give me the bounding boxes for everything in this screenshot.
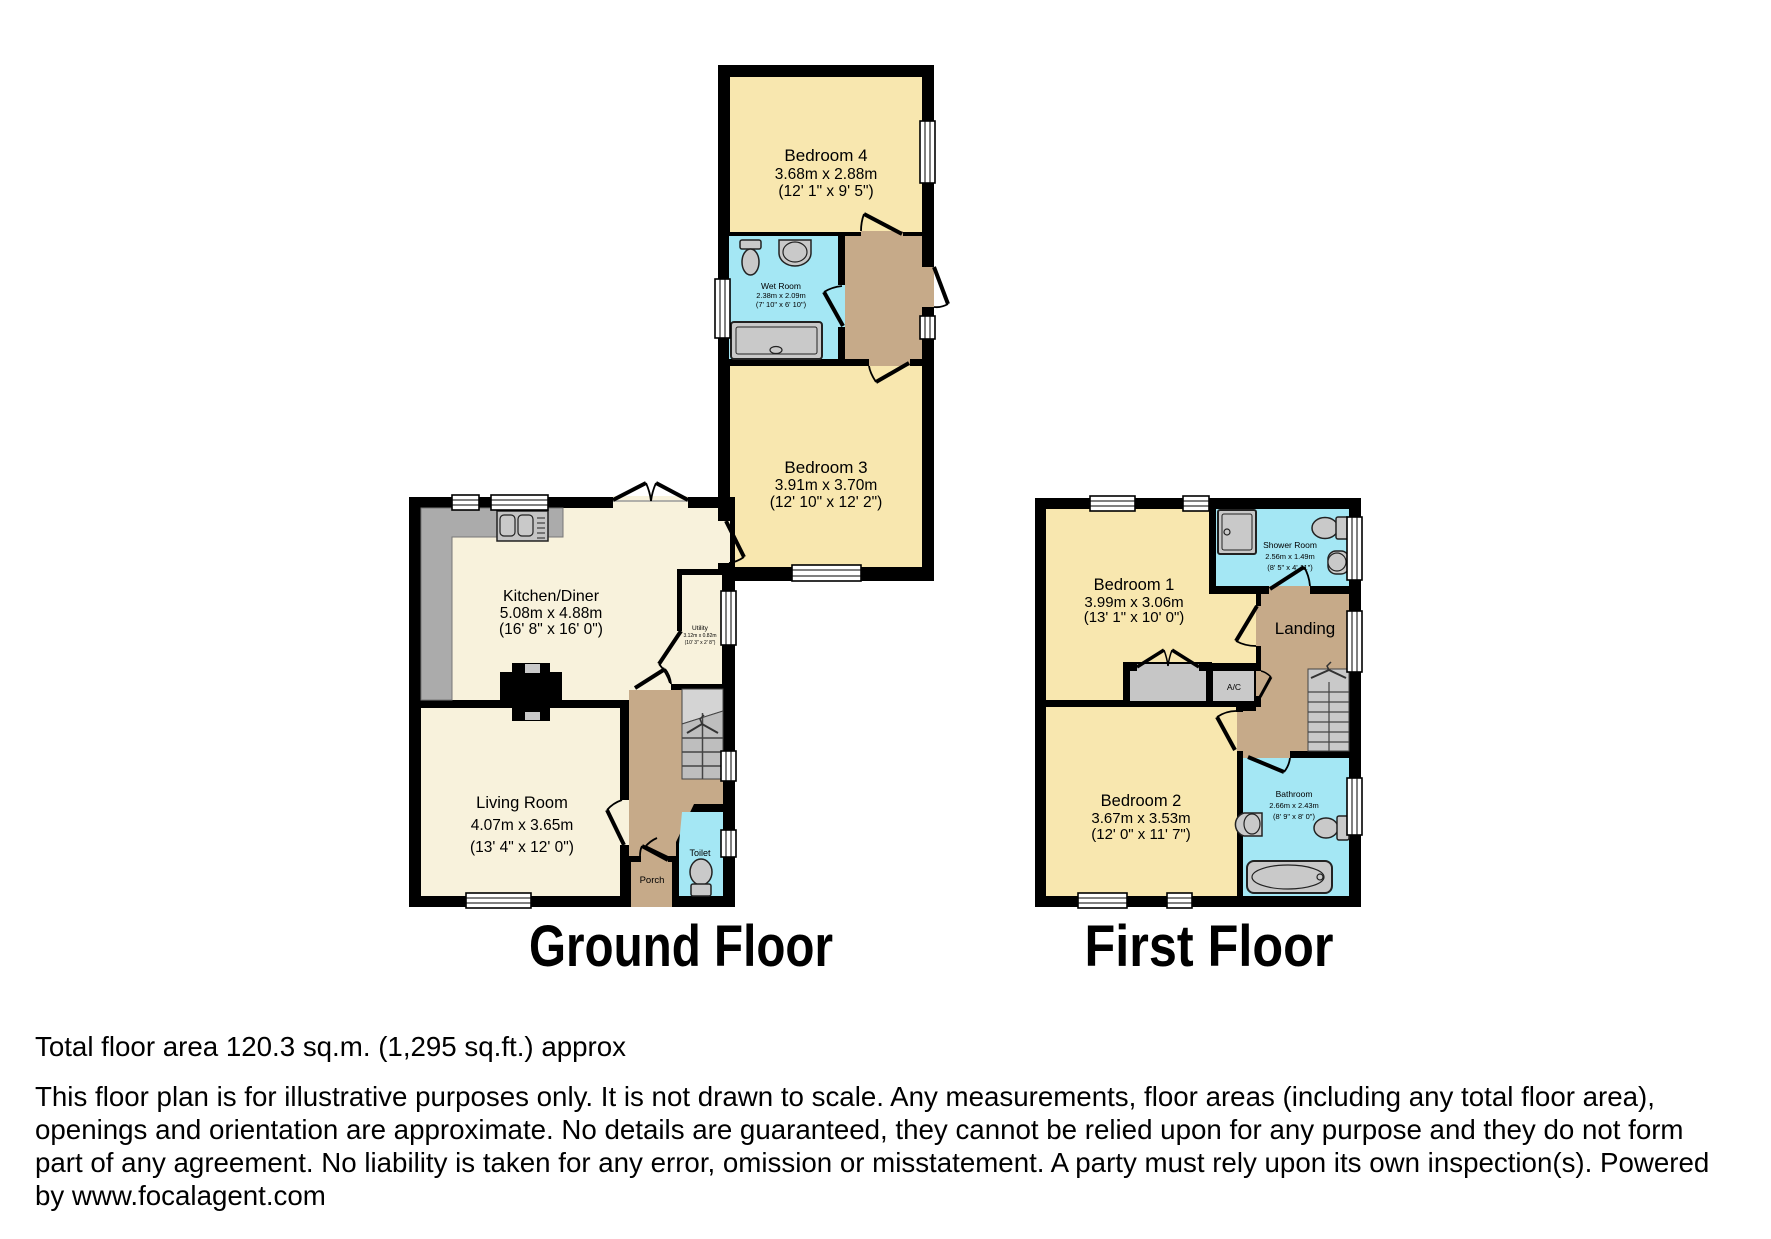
svg-text:(12' 0" x 11' 7"): (12' 0" x 11' 7") [1091, 826, 1190, 843]
svg-text:3.68m x 2.88m: 3.68m x 2.88m [775, 166, 878, 183]
svg-text:2.66m x 2.43m: 2.66m x 2.43m [1269, 801, 1319, 810]
svg-text:Bedroom 4: Bedroom 4 [784, 146, 867, 165]
svg-text:(8' 9" x 8' 0"): (8' 9" x 8' 0") [1273, 812, 1315, 821]
svg-text:(7' 10" x 6' 10"): (7' 10" x 6' 10") [756, 300, 807, 309]
svg-text:(13' 1" x 10' 0"): (13' 1" x 10' 0") [1084, 609, 1185, 626]
svg-text:Landing: Landing [1275, 619, 1336, 638]
svg-text:Bathroom: Bathroom [1276, 789, 1313, 799]
svg-text:Shower Room: Shower Room [1263, 540, 1317, 550]
svg-text:Living Room: Living Room [476, 794, 568, 812]
svg-text:2.38m x 2.09m: 2.38m x 2.09m [756, 291, 806, 300]
svg-text:(13' 4" x 12' 0"): (13' 4" x 12' 0") [470, 839, 574, 856]
svg-text:Kitchen/Diner: Kitchen/Diner [503, 588, 600, 605]
svg-text:Porch: Porch [640, 875, 665, 886]
svg-text:Wet Room: Wet Room [761, 281, 801, 291]
svg-text:3.67m x 3.53m: 3.67m x 3.53m [1091, 810, 1190, 827]
svg-text:3.12m x 0.82m: 3.12m x 0.82m [683, 633, 716, 639]
svg-text:Toilet: Toilet [689, 848, 711, 858]
svg-text:3.91m x 3.70m: 3.91m x 3.70m [775, 477, 878, 494]
svg-text:Ground Floor: Ground Floor [529, 914, 833, 979]
svg-text:(12' 10" x 12' 2"): (12' 10" x 12' 2") [770, 494, 883, 511]
svg-text:First Floor: First Floor [1085, 914, 1334, 979]
svg-text:Bedroom 2: Bedroom 2 [1101, 792, 1182, 810]
svg-text:A/C: A/C [1227, 682, 1241, 692]
svg-text:2.56m x 1.49m: 2.56m x 1.49m [1265, 552, 1315, 561]
svg-text:(12' 1" x 9' 5"): (12' 1" x 9' 5") [778, 183, 873, 200]
svg-text:Bedroom 1: Bedroom 1 [1094, 576, 1175, 594]
svg-text:Bedroom 3: Bedroom 3 [784, 458, 867, 477]
svg-text:(10' 3" x 2' 8"): (10' 3" x 2' 8") [685, 640, 716, 646]
svg-text:5.08m x 4.88m: 5.08m x 4.88m [500, 605, 603, 622]
svg-text:4.07m x 3.65m: 4.07m x 3.65m [471, 817, 574, 834]
svg-text:Utility: Utility [692, 625, 709, 632]
svg-text:(16' 8" x 16' 0"): (16' 8" x 16' 0") [499, 621, 603, 638]
svg-text:(8' 5" x 4' 11"): (8' 5" x 4' 11") [1267, 563, 1313, 572]
